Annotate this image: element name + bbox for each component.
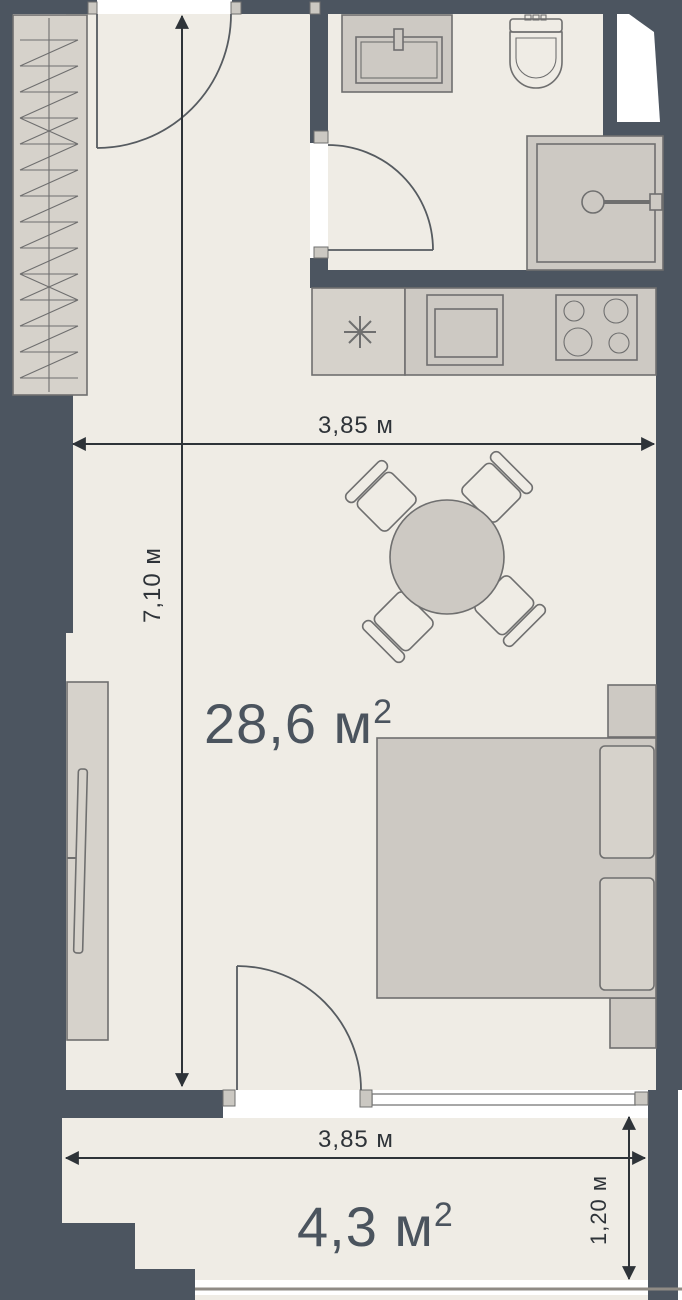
dimension-label-balcony-depth: 1,20 м — [586, 1175, 611, 1245]
balcony-area-label: 4,3 м2 — [297, 1195, 454, 1258]
pillow-icon — [600, 746, 654, 858]
door-jamb — [88, 2, 97, 14]
wall-segment — [310, 270, 682, 288]
wall-segment — [0, 1269, 195, 1300]
wall-segment — [0, 633, 66, 1090]
wall-segment — [0, 1223, 135, 1269]
door-jamb — [231, 2, 241, 14]
door-jamb — [314, 131, 328, 143]
area-value: 28,6 м — [204, 692, 373, 755]
living-room-area-label: 28,6 м2 — [204, 692, 393, 755]
window-jamb — [635, 1092, 648, 1105]
shower-valve — [650, 194, 662, 210]
door-jamb — [310, 2, 320, 14]
facade-edge — [678, 1090, 682, 1300]
area-superscript: 2 — [373, 693, 393, 731]
dimension-label-room-height: 7,10 м — [139, 547, 166, 623]
sink-icon — [342, 15, 452, 92]
area-value: 4,3 м — [297, 1195, 434, 1258]
window — [372, 1094, 635, 1105]
kitchen-counter — [405, 288, 656, 375]
tv-stand-icon — [67, 682, 108, 1040]
nightstand-icon — [610, 998, 656, 1048]
door-jamb — [360, 1090, 372, 1107]
dining-table-icon — [390, 500, 504, 614]
wall-segment — [0, 395, 73, 633]
wall-segment — [310, 14, 328, 143]
kitchen — [312, 288, 656, 375]
wall-segment — [663, 136, 682, 270]
door-jamb — [223, 1090, 235, 1106]
nightstand-icon — [608, 685, 656, 737]
hallway-floor — [66, 14, 310, 288]
entrance-opening — [97, 0, 232, 14]
floor-plan: 3,85 м 7,10 м 3,85 м 1,20 м 28,6 м2 4,3 … — [0, 0, 682, 1300]
door-jamb — [314, 247, 328, 258]
sink-counter — [342, 15, 452, 92]
wall-segment — [0, 1118, 62, 1223]
floor-plan-svg: 3,85 м 7,10 м 3,85 м 1,20 м 28,6 м2 4,3 … — [0, 0, 682, 1300]
wall-segment — [0, 1090, 223, 1118]
tv-group — [67, 682, 108, 1040]
dimension-label-room-width: 3,85 м — [318, 412, 394, 439]
dimension-label-balcony-width: 3,85 м — [318, 1126, 394, 1153]
area-superscript: 2 — [434, 1196, 454, 1234]
wall-segment — [0, 14, 13, 395]
wall-segment — [656, 288, 682, 1090]
wall-segment — [648, 1090, 678, 1300]
sink-faucet — [394, 29, 403, 50]
bed-group — [377, 685, 656, 1048]
shower-icon — [527, 136, 663, 270]
wardrobe-icon — [13, 15, 87, 395]
balcony-edge-strip — [195, 1295, 682, 1300]
pillow-icon — [600, 878, 654, 990]
